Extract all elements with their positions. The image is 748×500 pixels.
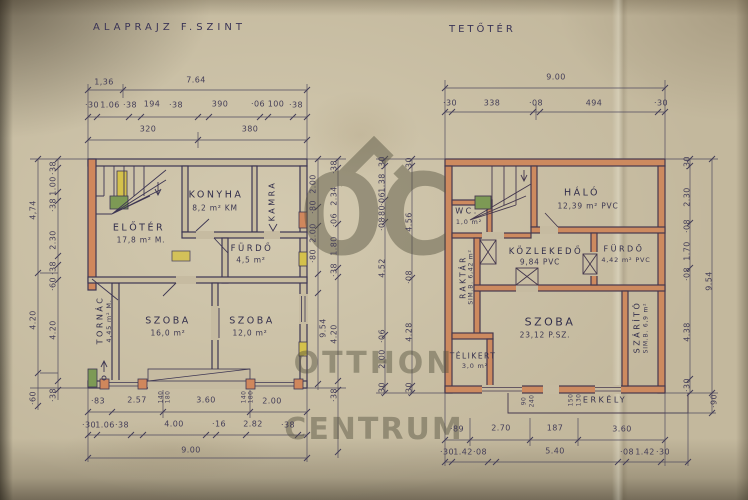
right-plan-title: TETŐTÉR [449,24,516,35]
dim-label: 5.40 [545,447,564,456]
room-label-furdo-left: FÜRDŐ [231,244,274,254]
dim-label: 140 [158,391,165,404]
dim-label: 380 [242,125,258,134]
left-plan-stairs [92,166,166,380]
room-area-furdo-right: 4,42 m² PVC [601,256,650,264]
dim-label: 338 [484,99,500,108]
dim-label: ·06 [378,329,387,343]
dim-label: 100 [268,100,284,109]
dim-label: ·30 [654,99,668,108]
dim-label: ·30 [378,382,387,396]
room-label-wc: WC. [455,207,479,216]
dim-label: 320 [140,125,156,134]
room-label-furdo-right: FÜRDŐ [604,245,645,254]
dim-label: 9.54 [705,271,714,290]
left-plan-dimension-ticks [35,87,341,461]
dim-label: ·06 [251,100,265,109]
dim-label: 2.57 [127,396,146,405]
dim-label: 187 [547,424,563,433]
dim-label: ·30 [443,99,457,108]
room-area-furdo-left: 4,5 m² [236,256,265,265]
dim-label: 4.20 [29,310,38,329]
dim-label: 1.80 [330,236,339,255]
dim-label: 2.00 [262,397,281,406]
dim-label: ·08 [683,219,692,233]
room-area-wc: 1,0 m² [456,218,482,226]
dim-label: ·08 [620,448,634,457]
dim-label: 90 [521,397,528,405]
left-plan-dimension-lines [30,84,346,462]
dim-label: 3.60 [196,396,215,405]
dim-label: 180 [165,391,172,404]
room-label-szoba-right: SZOBA [525,316,576,329]
dim-label: 4.28 [405,322,414,341]
room-area-eloter: 17,8 m² M. [117,236,166,245]
room-area-halo: 12,39 m² PVC [557,202,618,211]
dim-label: ·38 [49,198,58,212]
room-label-halo: HÁLÓ [564,188,600,199]
room-area-tornac: 4,45 m² M. [105,299,113,342]
dim-label: 4.56 [405,212,414,231]
dim-label: 2.00 [378,349,387,368]
room-area-telikert: 3,0 m² [462,362,488,370]
dim-label: 140 [241,391,248,404]
room-area-raktar: SIM.B. 6,42 m² [468,249,475,304]
dim-label: ·90 [710,394,719,408]
dim-label: ·30 [378,156,387,170]
dim-label: ·89 [450,425,464,434]
dim-label: 1.42 [635,448,654,457]
left-plan-title: ALAPRAJZ F.SZINT [93,22,246,33]
room-label-eloter: ELŐTÉR [113,223,165,234]
dim-label: 4,74 [29,200,38,219]
room-label-tornac: TORNÁC [96,296,105,345]
dim-label: 4.00 [164,420,183,429]
dim-label: 9.00 [181,446,200,455]
room-area-szoba1: 16,0 m² [151,329,186,338]
dim-label: 4.52 [378,258,387,277]
dim-label: 2.30 [683,187,692,206]
right-plan-stairs [470,166,531,220]
room-label-szoba2: SZOBA [229,316,275,327]
room-label-szoba1: SZOBA [145,316,191,327]
dim-label: 194 [144,100,160,109]
dim-label: ·08 [473,448,487,457]
dim-label: ·80 [309,200,318,214]
dim-label: ·83 [91,397,105,406]
dim-label: ·38 [49,161,58,175]
dim-label: 1.70 [683,241,692,260]
dim-label: 1,36 [94,78,113,87]
dim-label: 7.64 [186,76,205,85]
dim-label: 150 [568,394,575,407]
room-area-szarito: SIM.B. 6,9 m² [643,303,650,354]
scanned-floorplan-sheet: OC OTTHON CENTRUM ALAPRAJZ F.SZINT TETŐT… [0,0,748,500]
dim-label: 3.60 [612,425,631,434]
dim-label: ·06 [378,192,387,206]
room-label-telikert: TÉLIKERT [450,352,497,361]
dim-label: 1.06 [100,101,119,110]
dim-label: ·30 [82,421,96,430]
dim-label: 180 [248,391,255,404]
room-label-szarito: SZÁRÍTÓ [633,301,642,354]
dim-label: ·38 [281,421,295,430]
dim-label: 9.54 [319,318,328,337]
dim-label: 4.38 [683,322,692,341]
dim-label: ·08 [683,267,692,281]
dim-label: ·30 [405,157,414,171]
room-label-raktar: RAKTÁR [459,255,468,299]
dim-label: 2.00 [309,174,318,193]
dim-label: ·16 [212,420,226,429]
dim-label: 494 [586,99,602,108]
dim-label: 2.34 [330,186,339,205]
dim-label: ·38 [169,101,183,110]
dim-label: 4.20 [49,320,58,339]
dim-label: ·30 [405,382,414,396]
left-plan-windows [108,296,305,386]
dim-label: ·60 [49,277,58,291]
dim-label: 130 [576,394,583,407]
dim-label: 390 [212,100,228,109]
dim-label: ·38 [49,388,58,402]
dim-label: ·08 [405,270,414,284]
dim-label: ·38 [330,160,339,174]
dim-label: 1.38 [378,173,387,192]
dim-label: 1.42 [453,448,472,457]
dim-label: ·08 [378,217,387,231]
dim-label: 2.00 [309,223,318,242]
dim-label: ·08 [529,99,543,108]
dim-label: ·30 [85,101,99,110]
dim-label: ·30 [656,448,670,457]
dim-label: ·30 [683,156,692,170]
room-label-erkely: ERKÉLY [583,396,627,405]
dim-label: 4.20 [330,324,339,343]
dim-label: ·38 [330,388,339,402]
room-area-kozlekedo: 9,84 PVC [520,258,560,267]
dim-label: 1.00 [49,176,58,195]
room-area-konyha: 8,2 m² KM [192,204,238,213]
dim-label: ·80 [309,249,318,263]
dim-label: ·38 [123,101,137,110]
dim-label: 2.70 [491,424,510,433]
dim-label: 1.06 [95,421,114,430]
room-label-kamra: KAMRA [268,181,277,222]
dim-label: ·38 [330,263,339,277]
dim-label: ·38 [115,421,129,430]
dim-label: ·30 [440,448,454,457]
room-area-szoba2: 12,0 m² [233,329,268,338]
dim-label: ·30 [683,378,692,392]
room-label-kozlekedo: KÖZLEKEDŐ [509,247,583,257]
dim-label: ·06 [330,213,339,227]
dim-label: 9.00 [546,73,565,82]
dim-label: 240 [529,395,536,408]
room-label-konyha: KONYHA [189,190,244,201]
dim-label: ·60 [29,391,38,405]
dim-label: 2.30 [49,230,58,249]
dim-label: ·38 [289,101,303,110]
left-plan-openings [108,231,308,389]
dim-label: ·38 [49,261,58,275]
room-area-szoba-right: 23,12 P.SZ. [520,331,571,340]
dim-label: 2.82 [243,420,262,429]
right-plan-dimension-lines [376,80,718,466]
